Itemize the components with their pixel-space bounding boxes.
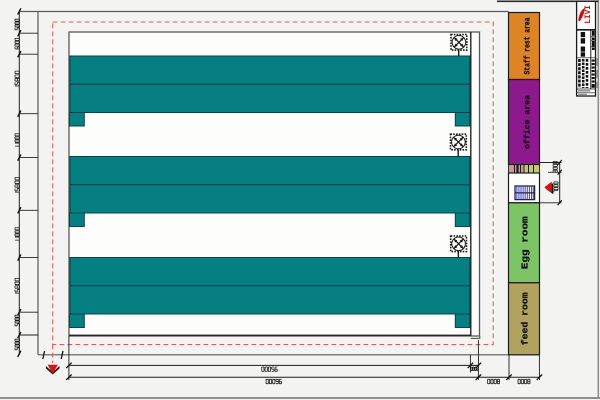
svg-text:office area: office area [523,95,533,149]
svg-text:LIVI: LIVI [583,5,593,24]
svg-text:Egg room: Egg room [521,216,531,270]
svg-text:feed room: feed room [521,292,531,346]
svg-text:Staff rest area: Staff rest area [524,17,533,74]
